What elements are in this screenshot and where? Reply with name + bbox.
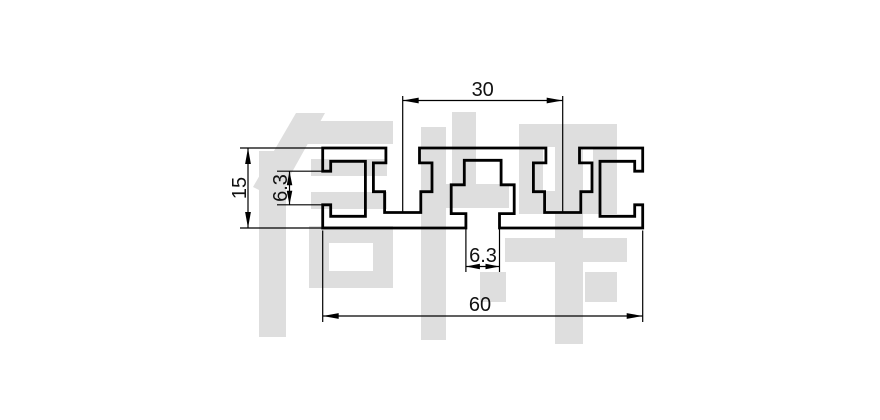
- dim-label-profile-width: 60: [469, 294, 491, 316]
- dim-label-bottom-slot-opening: 6.3: [469, 245, 497, 267]
- watermark-stroke: [421, 127, 446, 340]
- dim-label-end-slot-opening: 6.3: [270, 174, 292, 202]
- watermark-stroke: [421, 184, 509, 208]
- dim-label-top-slot-spacing: 30: [472, 79, 494, 101]
- dim-label-profile-height: 15: [229, 177, 251, 199]
- technical-drawing: 30 15 6.3 6.3 60: [0, 0, 880, 420]
- watermark-stroke: [585, 272, 617, 302]
- watermark-stroke: [305, 121, 393, 144]
- drawing-canvas: 30 15 6.3 6.3 60: [0, 0, 880, 420]
- watermark-stroke: [505, 238, 627, 262]
